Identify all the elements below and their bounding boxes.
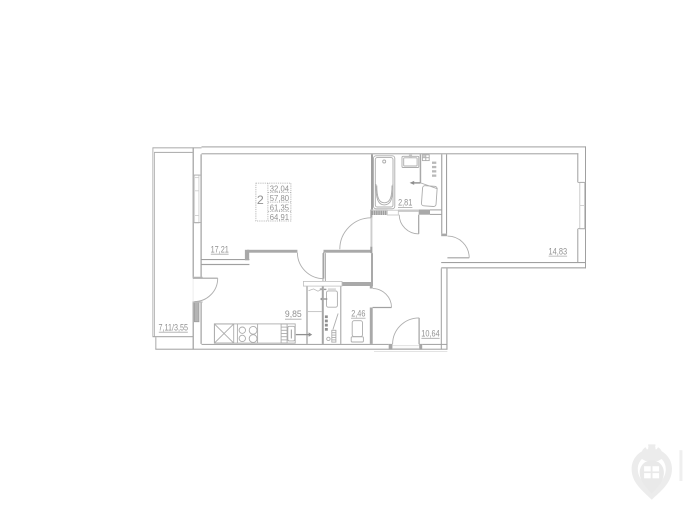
svg-text:57,80: 57,80 (270, 193, 289, 203)
svg-text:64,91: 64,91 (270, 212, 289, 222)
svg-text:2: 2 (257, 193, 264, 207)
svg-text:2,46: 2,46 (351, 308, 365, 318)
svg-text:7,11/3,55: 7,11/3,55 (159, 322, 189, 332)
svg-text:2,81: 2,81 (398, 198, 412, 208)
svg-text:9,85: 9,85 (285, 309, 302, 319)
svg-text:61,35: 61,35 (270, 203, 289, 213)
svg-text:14,83: 14,83 (549, 246, 568, 256)
svg-text:32,04: 32,04 (270, 184, 289, 194)
svg-text:10,64: 10,64 (421, 328, 439, 338)
svg-text:17,21: 17,21 (211, 244, 229, 254)
